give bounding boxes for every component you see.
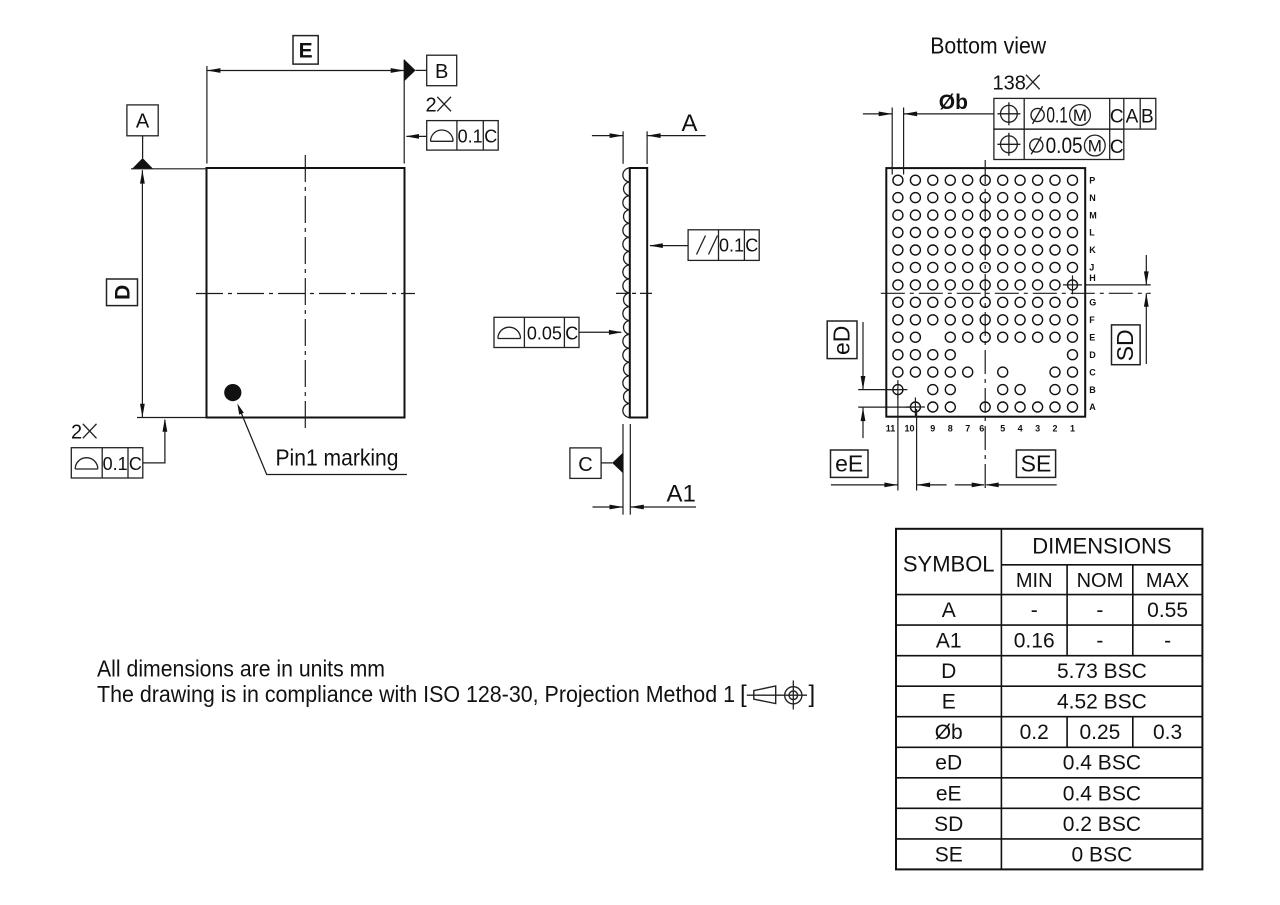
- svg-text:E: E: [299, 40, 313, 63]
- svg-text:0.1: 0.1: [103, 454, 128, 474]
- svg-text:E: E: [942, 691, 956, 714]
- svg-text:M: M: [1089, 210, 1097, 220]
- svg-text:0.55: 0.55: [1147, 599, 1188, 622]
- svg-text:11: 11: [886, 424, 896, 434]
- svg-text:8: 8: [948, 424, 953, 434]
- svg-text:K: K: [1089, 245, 1096, 255]
- svg-text:MIN: MIN: [1016, 570, 1053, 592]
- svg-text:5.73 BSC: 5.73 BSC: [1057, 660, 1147, 683]
- svg-text:0 BSC: 0 BSC: [1072, 843, 1133, 866]
- svg-text:C: C: [578, 454, 592, 476]
- svg-text:C: C: [1110, 137, 1124, 158]
- svg-text:138: 138: [993, 73, 1026, 95]
- svg-text:0.05: 0.05: [527, 324, 562, 344]
- svg-text:SE: SE: [935, 843, 963, 866]
- svg-text:C: C: [565, 324, 578, 344]
- svg-text:4: 4: [1018, 424, 1023, 434]
- svg-text:D: D: [941, 660, 956, 683]
- svg-text:N: N: [1089, 193, 1096, 203]
- svg-text:D: D: [112, 285, 135, 300]
- svg-text:5: 5: [1000, 424, 1005, 434]
- svg-text:0.4 BSC: 0.4 BSC: [1063, 752, 1141, 775]
- svg-text:G: G: [1089, 298, 1096, 308]
- svg-text:A: A: [1126, 107, 1139, 128]
- svg-text:0.4 BSC: 0.4 BSC: [1063, 782, 1141, 805]
- svg-text:eD: eD: [829, 326, 855, 355]
- svg-text:Bottom view: Bottom view: [930, 33, 1046, 59]
- svg-text:0.1: 0.1: [1046, 103, 1068, 128]
- svg-text:SD: SD: [934, 813, 963, 836]
- svg-text:C: C: [1089, 367, 1096, 377]
- svg-text:L: L: [1089, 228, 1095, 238]
- svg-text:J: J: [1089, 263, 1094, 273]
- svg-text:B: B: [1141, 107, 1154, 128]
- svg-text:H: H: [1089, 273, 1096, 283]
- svg-text:eE: eE: [936, 782, 962, 805]
- svg-text:0.16: 0.16: [1014, 630, 1055, 653]
- svg-text:0.1: 0.1: [719, 236, 744, 256]
- svg-text:-: -: [1096, 630, 1103, 653]
- svg-text:C: C: [129, 454, 142, 474]
- svg-text:2: 2: [71, 422, 82, 444]
- svg-text:0.2 BSC: 0.2 BSC: [1063, 813, 1141, 836]
- svg-text:A: A: [1089, 402, 1096, 412]
- svg-text:B: B: [1089, 385, 1096, 395]
- svg-text:SD: SD: [1112, 329, 1138, 361]
- svg-text:A: A: [682, 110, 698, 137]
- svg-text:Øb: Øb: [935, 721, 963, 744]
- svg-text:0.1: 0.1: [458, 126, 483, 146]
- svg-text:The drawing is in compliance w: The drawing is in compliance with ISO 12…: [97, 681, 735, 707]
- svg-text:A: A: [136, 111, 150, 133]
- svg-text:]: ]: [809, 681, 816, 708]
- svg-text:P: P: [1089, 175, 1095, 185]
- svg-text:C: C: [484, 126, 497, 146]
- svg-text:2: 2: [1052, 424, 1057, 434]
- svg-text:7: 7: [965, 424, 970, 434]
- svg-text:A: A: [942, 599, 956, 622]
- svg-text:A1: A1: [667, 481, 696, 508]
- svg-text:1: 1: [1070, 424, 1075, 434]
- svg-text:-: -: [1164, 630, 1171, 653]
- svg-text:D: D: [1089, 350, 1096, 360]
- svg-text:4.52 BSC: 4.52 BSC: [1057, 691, 1147, 714]
- svg-text:Pin1 marking: Pin1 marking: [276, 445, 399, 471]
- svg-text:B: B: [435, 61, 448, 83]
- svg-text:All dimensions are in units mm: All dimensions are in units mm: [97, 656, 385, 682]
- svg-text:2: 2: [426, 95, 437, 117]
- svg-text:eD: eD: [935, 752, 962, 775]
- svg-text:MAX: MAX: [1146, 570, 1189, 592]
- svg-text:SE: SE: [1021, 450, 1052, 476]
- svg-text:9: 9: [930, 424, 935, 434]
- svg-text:M: M: [1073, 106, 1087, 125]
- svg-text:DIMENSIONS: DIMENSIONS: [1032, 533, 1171, 558]
- svg-text:A1: A1: [936, 630, 962, 653]
- svg-text:0.25: 0.25: [1079, 721, 1120, 744]
- svg-text:C: C: [1110, 107, 1124, 128]
- svg-text:[: [: [740, 681, 747, 708]
- svg-text:-: -: [1031, 599, 1038, 622]
- svg-text:0.3: 0.3: [1153, 721, 1182, 744]
- svg-text:10: 10: [904, 424, 914, 434]
- svg-text:C: C: [745, 236, 758, 256]
- svg-text:F: F: [1089, 315, 1095, 325]
- svg-text:SYMBOL: SYMBOL: [903, 551, 995, 576]
- svg-text:M: M: [1088, 136, 1102, 155]
- svg-text:-: -: [1096, 599, 1103, 622]
- svg-text:Øb: Øb: [939, 91, 968, 114]
- svg-text:3: 3: [1035, 424, 1040, 434]
- svg-text:E: E: [1089, 332, 1095, 342]
- svg-text:eE: eE: [835, 450, 863, 476]
- svg-text:0.2: 0.2: [1020, 721, 1049, 744]
- svg-text:6: 6: [979, 424, 984, 434]
- svg-text:0.05: 0.05: [1046, 133, 1083, 158]
- svg-text:NOM: NOM: [1077, 570, 1124, 592]
